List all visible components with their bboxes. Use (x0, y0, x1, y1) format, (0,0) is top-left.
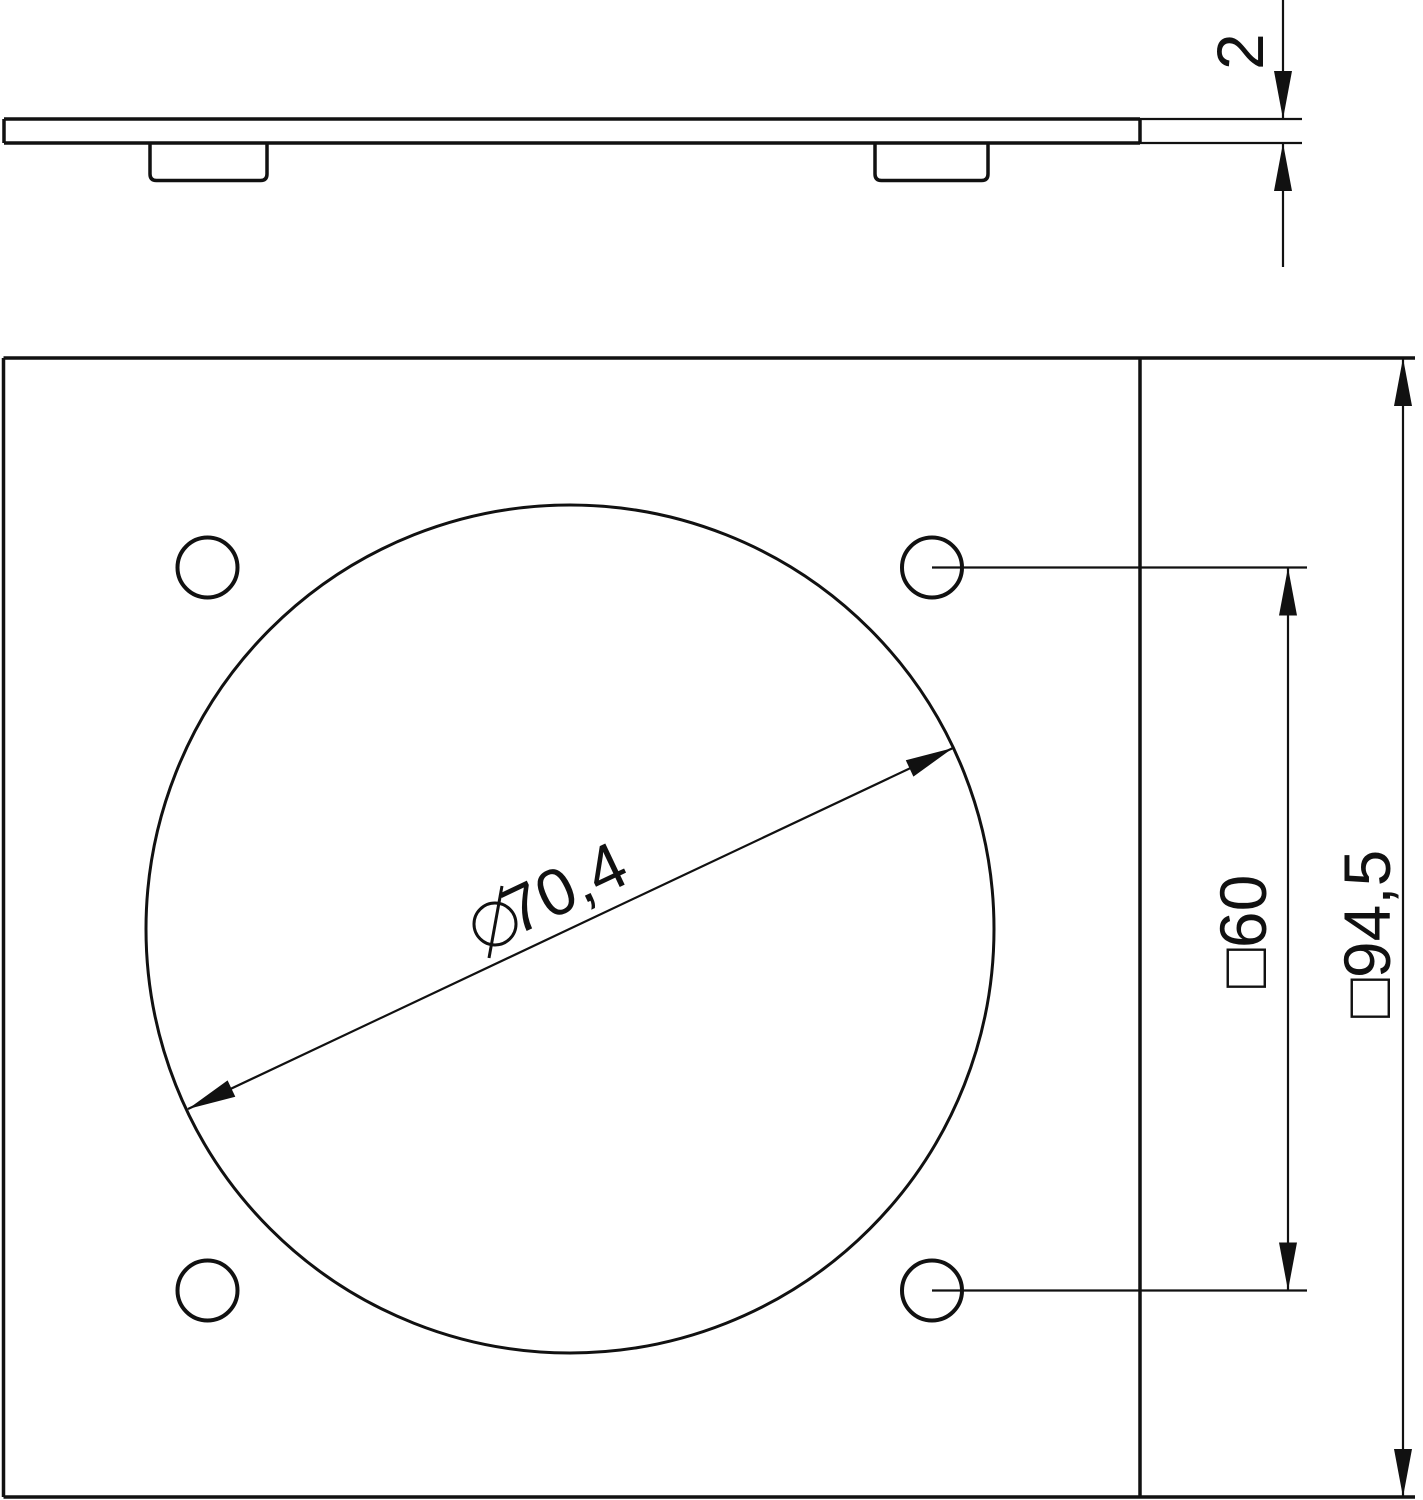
clip-tab-right (875, 145, 988, 181)
plate-size-dimension: □94,5 (1330, 358, 1412, 1497)
technical-drawing: 2 70,4 (0, 0, 1423, 1500)
thickness-dimension: 2 (1203, 0, 1292, 267)
hole-spacing-dimension-label: □60 (1206, 875, 1280, 988)
plate-size-dimension-label: □94,5 (1330, 850, 1404, 1018)
plate-profile-outline (4, 119, 1140, 143)
dimension-arrow-icon (1274, 71, 1292, 119)
dimension-arrow-icon (906, 748, 953, 777)
dimension-arrow-icon (1274, 143, 1292, 191)
diameter-dimension: 70,4 (188, 748, 953, 1109)
dimension-arrow-icon (1279, 1243, 1297, 1291)
thickness-extension-lines (1140, 119, 1302, 143)
dimension-arrow-icon (1394, 1449, 1412, 1497)
drawing-canvas: 2 70,4 (0, 0, 1423, 1500)
mounting-hole-circle (178, 1261, 238, 1321)
mounting-hole-circle (178, 538, 238, 598)
dimension-arrow-icon (188, 1080, 235, 1109)
side-view: 2 (4, 0, 1302, 267)
dimension-arrow-icon (1394, 358, 1412, 406)
thickness-dimension-label: 2 (1203, 33, 1277, 70)
diameter-dimension-line (188, 748, 953, 1109)
front-view: 70,4 □60 □94,5 (4, 358, 1416, 1497)
hole-spacing-dimension: □60 (932, 568, 1307, 1291)
clip-tab-left (150, 145, 267, 181)
dimension-arrow-icon (1279, 568, 1297, 616)
